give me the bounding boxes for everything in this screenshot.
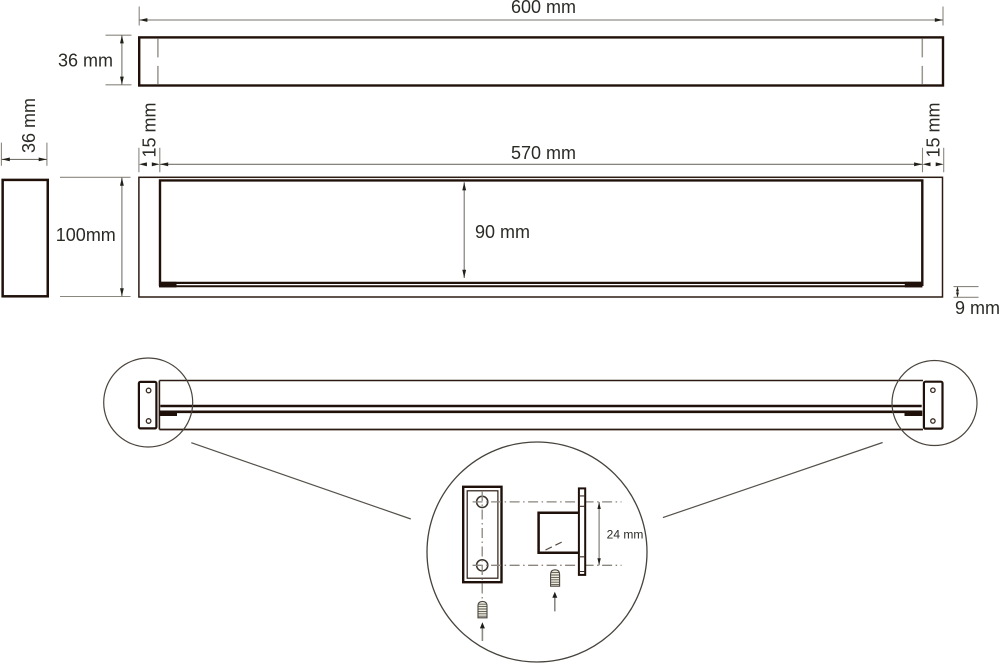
svg-text:600 mm: 600 mm [511, 0, 576, 17]
svg-text:15 mm: 15 mm [924, 102, 944, 157]
svg-text:9 mm: 9 mm [955, 298, 1000, 318]
svg-text:24 mm: 24 mm [607, 528, 644, 542]
svg-text:36 mm: 36 mm [19, 98, 39, 153]
svg-text:36 mm: 36 mm [58, 51, 113, 71]
svg-text:15 mm: 15 mm [140, 102, 160, 157]
svg-text:100mm: 100mm [56, 225, 116, 245]
svg-text:90 mm: 90 mm [475, 222, 530, 242]
svg-text:570 mm: 570 mm [511, 143, 576, 163]
